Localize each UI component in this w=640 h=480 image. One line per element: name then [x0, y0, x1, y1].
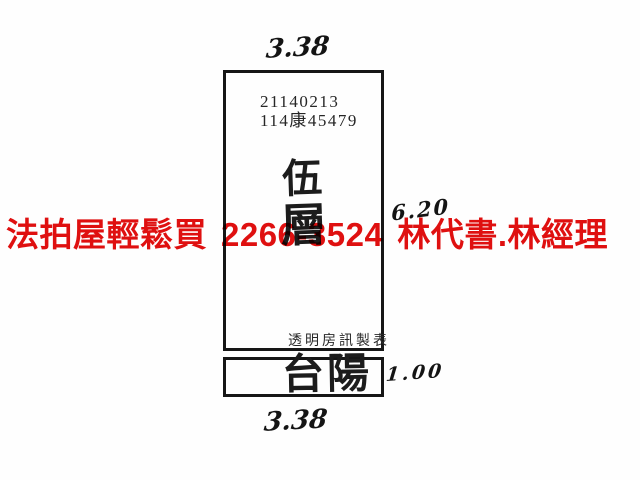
- ad-watermark-brand: 法拍屋輕鬆買: [6, 216, 207, 253]
- dimension-top: 3.38: [265, 31, 331, 64]
- balcony-label: 台陽: [282, 350, 373, 398]
- ad-watermark: 法拍屋輕鬆買2266-3524林代書.林經理: [6, 216, 640, 253]
- case-number-line1: 21140213: [260, 92, 358, 111]
- case-number-line2: 114康45479: [260, 111, 358, 130]
- ad-watermark-agents: 林代書.林經理: [397, 216, 608, 253]
- dimension-bottom: 3.38: [263, 404, 329, 437]
- case-numbers: 21140213 114康45479: [260, 92, 358, 130]
- scanned-floor-plan: 21140213 114康45479 伍 層 透明房訊製表 台陽 3.38 6.…: [0, 0, 640, 480]
- floor-label-char-top: 伍: [281, 157, 322, 200]
- ad-watermark-phone: 2266-3524: [221, 216, 383, 253]
- maker-credit: 透明房訊製表: [288, 330, 390, 350]
- dimension-right-balcony: 1.00: [385, 360, 445, 386]
